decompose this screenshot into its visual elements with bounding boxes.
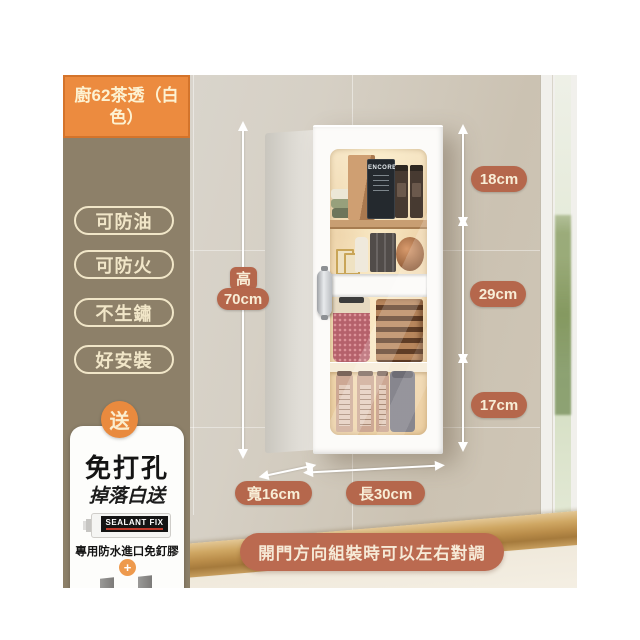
depth-arrow <box>267 466 308 476</box>
feature-pill-oilproof: 可防油 <box>74 206 174 235</box>
hook-back-plate <box>138 575 152 588</box>
feature-panel: 可防油 可防火 不生鏽 好安裝 送 免打孔 掉落白送 SEALANT FIX 專… <box>63 138 190 588</box>
height-value-pill: 70cm <box>217 288 269 310</box>
feature-pill-rustproof: 不生鏽 <box>74 298 174 327</box>
cabinet-side-panel <box>265 130 313 453</box>
cabinet-door: ENCORE <box>313 125 443 454</box>
gift-subheadline: 掉落白送 <box>70 481 184 508</box>
bottom-section-arrow <box>462 362 464 443</box>
cabinet-glass-window: ENCORE <box>330 149 427 435</box>
window-frame-line <box>552 75 553 515</box>
feature-pill-fireproof: 可防火 <box>74 250 174 279</box>
gift-card: 免打孔 掉落白送 SEALANT FIX 專用防水進口免釘膠 + <box>70 426 184 588</box>
bottom-section-pill: 17cm <box>471 392 527 418</box>
width-pill: 長30cm <box>346 481 425 505</box>
steel-hooks <box>70 578 184 588</box>
product-title-badge: 廚62茶透（白色） <box>63 75 190 138</box>
gift-badge: 送 <box>101 401 138 438</box>
assembly-note-banner: 開門方向組裝時可以左右對調 <box>240 533 504 571</box>
top-section-pill: 18cm <box>471 166 527 192</box>
steel-hook <box>92 578 122 588</box>
plus-icon: + <box>119 559 136 576</box>
gift-headline: 免打孔 <box>70 448 184 485</box>
feature-pill-easy-install: 好安裝 <box>74 345 174 374</box>
middle-section-arrow <box>462 225 464 355</box>
depth-pill: 寬16cm <box>235 481 312 505</box>
sealant-tube: SEALANT FIX <box>83 513 171 538</box>
glue-brand-text: SEALANT FIX <box>106 518 164 530</box>
tile-grout-line <box>193 75 194 515</box>
window-glass <box>555 75 571 515</box>
glue-caption: 專用防水進口免釘膠 <box>70 543 184 559</box>
top-section-arrow <box>462 133 464 218</box>
height-label-pill: 高 <box>230 267 257 290</box>
door-handle <box>317 270 332 316</box>
promo-image: ENCORE <box>0 0 640 640</box>
steel-hook <box>130 576 162 588</box>
window-frame <box>540 75 577 515</box>
hook-back-plate <box>100 577 114 588</box>
middle-section-pill: 29cm <box>470 281 526 307</box>
width-arrow <box>312 465 436 473</box>
foliage-view <box>555 215 571 415</box>
tube-label: SEALANT FIX <box>101 516 168 532</box>
tube-body: SEALANT FIX <box>91 513 171 538</box>
glass-reflection <box>330 149 427 435</box>
kitchen-scene: ENCORE <box>63 75 577 588</box>
